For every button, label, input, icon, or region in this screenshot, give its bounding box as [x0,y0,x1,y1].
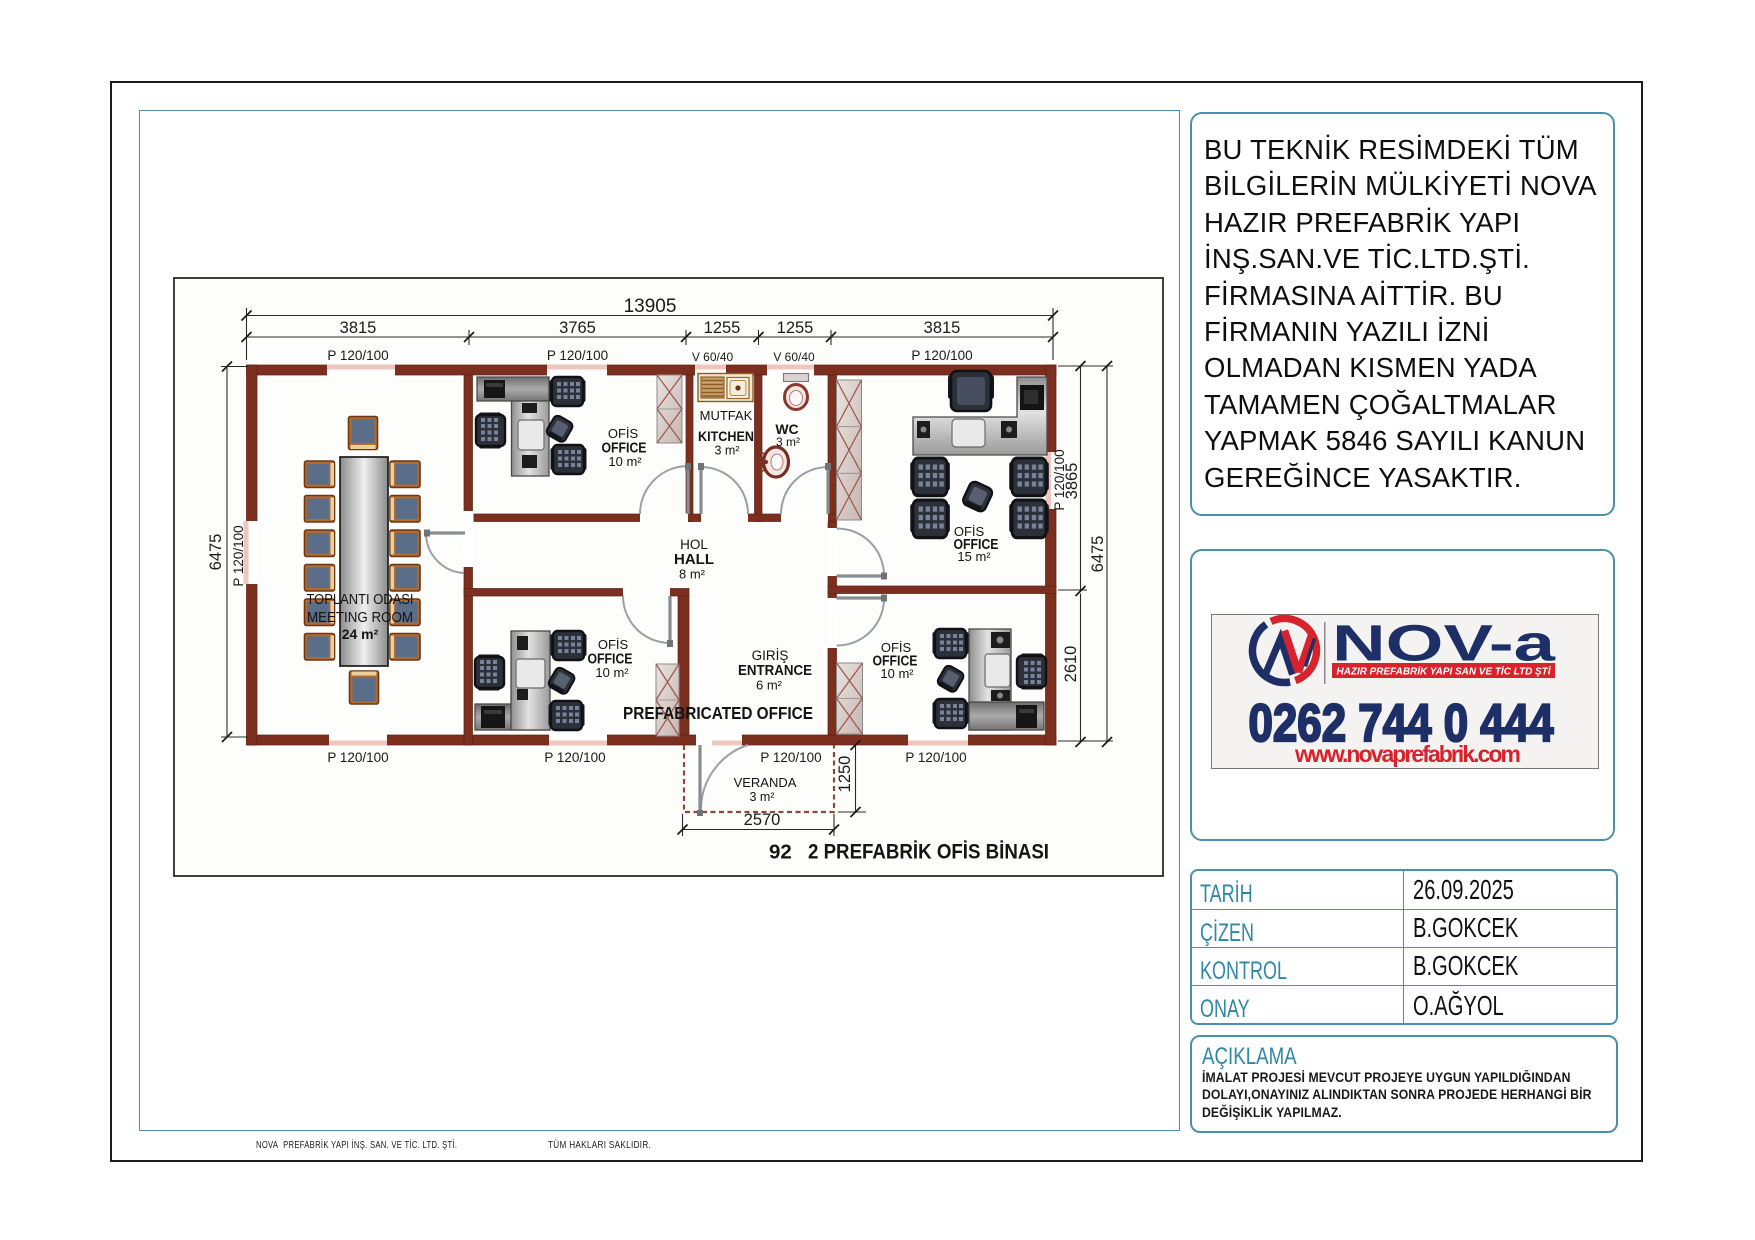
svg-text:92: 92 [769,841,792,864]
svg-text:www.novaprefabrik.com: www.novaprefabrik.com [1294,741,1521,767]
svg-text:1255: 1255 [704,319,741,337]
svg-text:10 m²: 10 m² [608,454,642,469]
svg-text:3815: 3815 [924,319,961,337]
svg-text:OFİS: OFİS [608,426,639,441]
svg-text:6475: 6475 [207,534,225,571]
svg-text:10 m²: 10 m² [595,665,629,680]
svg-text:KITCHEN: KITCHEN [698,429,754,444]
svg-text:NOV-a: NOV-a [1332,615,1556,672]
svg-text:2570: 2570 [744,811,781,829]
svg-text:V 60/40: V 60/40 [692,350,734,364]
svg-text:P 120/100: P 120/100 [911,348,972,363]
svg-text:24 m²: 24 m² [342,626,379,642]
svg-text:1250: 1250 [836,756,854,793]
svg-text:3815: 3815 [340,319,377,337]
svg-text:3 m²: 3 m² [715,444,740,458]
svg-text:MEETING ROOM: MEETING ROOM [307,609,413,626]
svg-text:PREFABRICATED OFFICE: PREFABRICATED OFFICE [623,703,813,723]
svg-text:P 120/100: P 120/100 [1052,449,1067,510]
svg-text:TOPLANTI ODASI: TOPLANTI ODASI [307,591,414,608]
svg-text:P 120/100: P 120/100 [327,750,388,765]
svg-text:3 m²: 3 m² [750,790,775,804]
svg-text:P 120/100: P 120/100 [905,750,966,765]
svg-text:OFİS: OFİS [598,637,629,652]
svg-text:3765: 3765 [559,319,596,337]
svg-text:P 120/100: P 120/100 [544,750,605,765]
svg-text:2610: 2610 [1062,646,1080,683]
svg-text:HALL: HALL [674,551,714,568]
svg-text:MUTFAK: MUTFAK [700,408,753,423]
svg-text:P 120/100: P 120/100 [547,348,608,363]
svg-text:8 m²: 8 m² [679,567,706,582]
svg-text:6475: 6475 [1089,536,1107,573]
svg-text:P 120/100: P 120/100 [760,750,821,765]
svg-text:V 60/40: V 60/40 [773,350,815,364]
svg-text:13905: 13905 [624,296,677,317]
svg-text:10 m²: 10 m² [880,666,914,681]
svg-text:2 PREFABRİK OFİS BİNASI: 2 PREFABRİK OFİS BİNASI [808,841,1049,864]
svg-text:HAZIR PREFABRİK YAPI SAN VE Tİ: HAZIR PREFABRİK YAPI SAN VE TİC LTD ŞTİ [1337,665,1552,678]
svg-text:P 120/100: P 120/100 [327,348,388,363]
svg-text:P 120/100: P 120/100 [231,525,246,586]
svg-text:15 m²: 15 m² [957,549,991,564]
svg-text:1255: 1255 [777,319,814,337]
svg-text:HOL: HOL [680,537,708,552]
svg-text:GIRİŞ: GIRİŞ [752,648,789,663]
svg-text:VERANDA: VERANDA [734,775,797,790]
svg-text:3 m²: 3 m² [776,435,800,449]
svg-text:6 m²: 6 m² [756,678,783,693]
